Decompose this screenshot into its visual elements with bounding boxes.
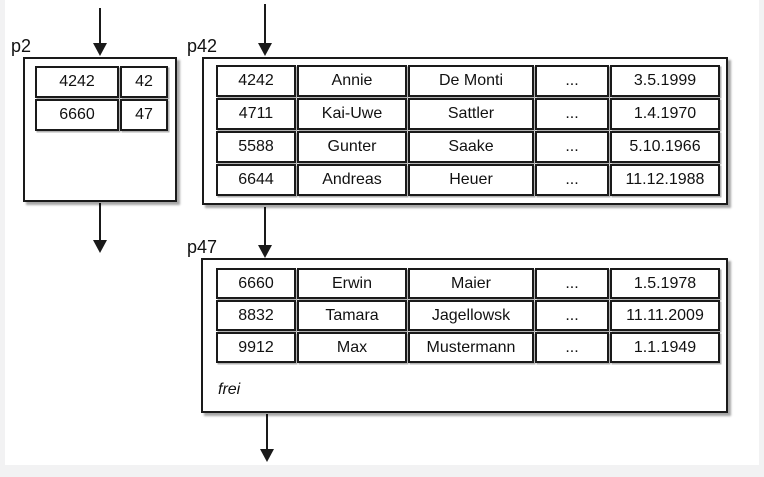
- page-edge-right: [759, 0, 764, 477]
- arrow-shaft: [266, 414, 268, 453]
- arrow-head-icon: [258, 43, 272, 56]
- table-cell: 9912: [216, 332, 296, 363]
- table-cell: De Monti: [408, 65, 534, 97]
- node-label-p42: p42: [187, 37, 217, 55]
- table-cell: 8832: [216, 300, 296, 331]
- table-cell: 1.4.1970: [610, 98, 720, 130]
- table-cell: ...: [535, 332, 609, 363]
- table-cell: Jagellowsk: [408, 300, 534, 331]
- table-cell: Max: [297, 332, 407, 363]
- table-cell: 4242: [216, 65, 296, 97]
- table-cell: 47: [120, 99, 168, 131]
- table-cell: ...: [535, 98, 609, 130]
- table-cell: Andreas: [297, 164, 407, 196]
- table-cell: 1.5.1978: [610, 268, 720, 299]
- table-cell: 6660: [35, 99, 119, 131]
- table-cell: ...: [535, 164, 609, 196]
- node-label-p2: p2: [11, 37, 31, 55]
- page-edge-bottom: [0, 465, 764, 477]
- node-box-p2: 4242 42 6660 47: [23, 57, 177, 202]
- table-cell: 4242: [35, 66, 119, 98]
- table-cell: 11.12.1988: [610, 164, 720, 196]
- free-space-label: frei: [218, 381, 240, 399]
- arrow-head-icon: [258, 245, 272, 258]
- table-cell: 11.11.2009: [610, 300, 720, 331]
- p2-index-table: 4242 42 6660 47: [35, 66, 168, 131]
- p42-record-table: 4242 Annie De Monti ... 3.5.1999 4711 Ka…: [216, 65, 720, 196]
- table-cell: Annie: [297, 65, 407, 97]
- table-cell: Mustermann: [408, 332, 534, 363]
- arrow-p42-to-p47: [257, 207, 273, 258]
- table-cell: Kai-Uwe: [297, 98, 407, 130]
- index-pages-diagram: p2 p42 p47 4242 42 6660 47 4242 Annie De…: [0, 0, 764, 477]
- table-cell: ...: [535, 131, 609, 163]
- table-cell: Maier: [408, 268, 534, 299]
- table-row: 9912 Max Mustermann ... 1.1.1949: [216, 332, 720, 363]
- arrow-shaft: [264, 4, 266, 47]
- arrow-head-icon: [260, 449, 274, 462]
- node-box-p47: 6660 Erwin Maier ... 1.5.1978 8832 Tamar…: [201, 258, 728, 413]
- table-row: 8832 Tamara Jagellowsk ... 11.11.2009: [216, 300, 720, 331]
- table-cell: 1.1.1949: [610, 332, 720, 363]
- arrow-into-p42: [257, 4, 273, 56]
- table-row: 6644 Andreas Heuer ... 11.12.1988: [216, 164, 720, 196]
- table-row: 4242 Annie De Monti ... 3.5.1999: [216, 65, 720, 97]
- table-cell: ...: [535, 268, 609, 299]
- table-cell: Heuer: [408, 164, 534, 196]
- table-cell: Sattler: [408, 98, 534, 130]
- table-cell: 42: [120, 66, 168, 98]
- table-cell: ...: [535, 65, 609, 97]
- table-cell: 4711: [216, 98, 296, 130]
- table-row: 5588 Gunter Saake ... 5.10.1966: [216, 131, 720, 163]
- arrow-out-of-p47: [259, 414, 275, 462]
- table-cell: 6644: [216, 164, 296, 196]
- arrow-shaft: [99, 203, 101, 244]
- table-cell: Saake: [408, 131, 534, 163]
- arrow-head-icon: [93, 43, 107, 56]
- table-row: 6660 Erwin Maier ... 1.5.1978: [216, 268, 720, 299]
- arrow-shaft: [264, 207, 266, 249]
- p47-record-table: 6660 Erwin Maier ... 1.5.1978 8832 Tamar…: [216, 268, 720, 363]
- node-label-p47: p47: [187, 238, 217, 256]
- table-row: 4711 Kai-Uwe Sattler ... 1.4.1970: [216, 98, 720, 130]
- table-cell: Gunter: [297, 131, 407, 163]
- node-box-p42: 4242 Annie De Monti ... 3.5.1999 4711 Ka…: [202, 57, 728, 205]
- table-cell: 6660: [216, 268, 296, 299]
- table-cell: 5.10.1966: [610, 131, 720, 163]
- table-cell: Tamara: [297, 300, 407, 331]
- table-cell: Erwin: [297, 268, 407, 299]
- table-cell: 3.5.1999: [610, 65, 720, 97]
- arrow-into-p2: [92, 8, 108, 56]
- table-row: 6660 47: [35, 99, 168, 131]
- table-cell: ...: [535, 300, 609, 331]
- arrow-head-icon: [93, 240, 107, 253]
- arrow-out-of-p2: [92, 203, 108, 253]
- page-edge-left: [0, 0, 5, 477]
- table-cell: 5588: [216, 131, 296, 163]
- arrow-shaft: [99, 8, 101, 47]
- table-row: 4242 42: [35, 66, 168, 98]
